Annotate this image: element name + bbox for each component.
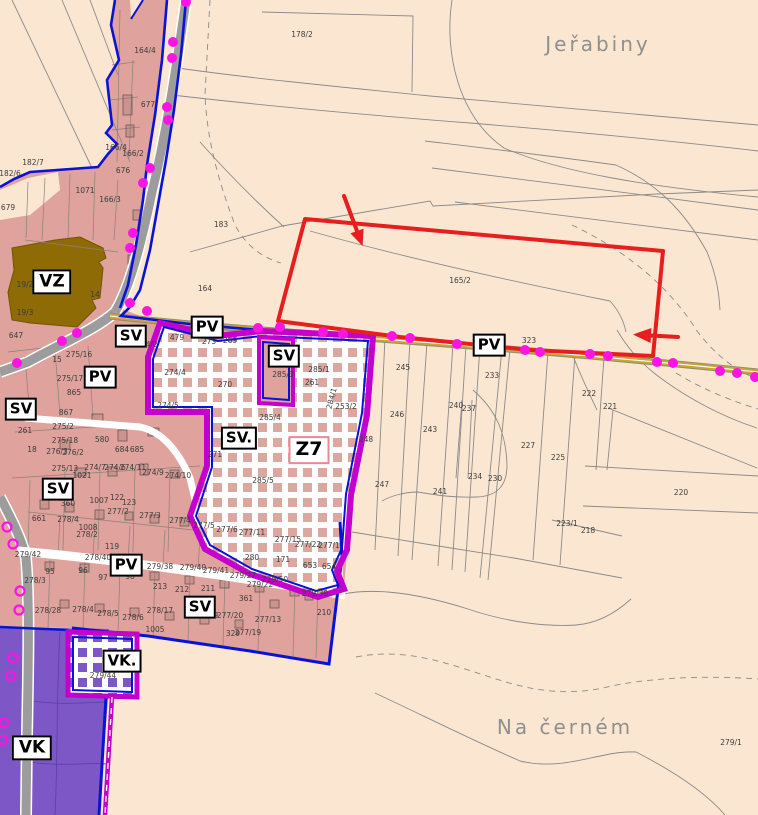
- parcel-number: 243: [423, 425, 438, 434]
- magenta-dot: [128, 228, 138, 238]
- parcel-number: 271: [208, 450, 223, 459]
- magenta-dot: [163, 115, 173, 125]
- parcel-number: 361: [239, 594, 254, 603]
- magenta-dot: [167, 53, 177, 63]
- parcel-number: 274/11: [120, 463, 147, 472]
- building-outline: [220, 580, 229, 588]
- parcel-number: 210: [317, 608, 332, 617]
- parcel-number: 323: [522, 336, 537, 345]
- parcel-number: 280: [245, 553, 260, 562]
- parcel-number: 685: [130, 445, 145, 454]
- building-outline: [118, 430, 127, 441]
- parcel-number: 661: [32, 514, 47, 523]
- parcel-number: 279/38: [147, 562, 174, 571]
- building-outline: [95, 510, 104, 519]
- magenta-dot: [585, 349, 595, 359]
- parcel-number: 253/2: [335, 402, 357, 411]
- parcel-number: 19/3: [17, 308, 34, 317]
- magenta-dot: [253, 323, 263, 333]
- parcel-number: 19/2: [17, 280, 34, 289]
- parcel-number: 278/4: [72, 605, 94, 614]
- parcel-number: 277/6: [216, 525, 238, 534]
- zoning-map-canvas: 178/2183164165/2323182/7182/667967610711…: [0, 0, 758, 815]
- parcel-number: 164/4: [134, 46, 156, 55]
- parcel-number: 684: [115, 445, 130, 454]
- parcel-number: 211: [201, 584, 216, 593]
- zone-label-sv: SV: [268, 345, 300, 368]
- building-outline: [270, 600, 279, 608]
- parcel-number: 233: [485, 371, 500, 380]
- red-arrow-shaft-2: [651, 336, 678, 338]
- parcel-number: 277/3: [139, 511, 161, 520]
- zone-label-sv: SV: [42, 478, 74, 501]
- parcel-number: 278/6: [122, 613, 144, 622]
- parcel-number: 1005: [145, 625, 164, 634]
- zone-label-sv: SV: [115, 325, 147, 348]
- parcel-number: 14: [90, 290, 100, 299]
- zone-label-z7: Z7: [289, 436, 330, 464]
- magenta-dot: [72, 328, 82, 338]
- zone-label-pv: PV: [84, 366, 117, 389]
- magenta-dot: [520, 345, 530, 355]
- parcel-number: 279/42: [15, 550, 42, 559]
- building-outline: [150, 572, 159, 580]
- parcel-number: 237: [462, 404, 477, 413]
- parcel-number: 247: [375, 480, 390, 489]
- parcel-number: 278/28: [35, 606, 62, 615]
- parcel-number: 220: [674, 488, 689, 497]
- parcel-number: 248: [359, 435, 374, 444]
- parcel-number: 123: [122, 498, 137, 507]
- zone-label-vk: VK: [12, 735, 52, 760]
- parcel-number: 246: [390, 410, 405, 419]
- parcel-number: 278/40: [85, 553, 112, 562]
- building-outline: [235, 620, 243, 628]
- parcel-number: 218: [581, 526, 596, 535]
- parcel-number: 212: [175, 585, 190, 594]
- magenta-dot: [652, 357, 662, 367]
- magenta-dot: [668, 358, 678, 368]
- parcel-number: 275/17: [57, 374, 84, 383]
- place-name: Na černém: [497, 715, 633, 739]
- parcel-number: 679: [1, 203, 16, 212]
- parcel-number: 279/39: [302, 589, 329, 598]
- parcel-number: 171: [276, 555, 291, 564]
- parcel-number: 274/4: [164, 368, 186, 377]
- parcel-number: 654: [322, 562, 337, 571]
- parcel-number: 182/7: [22, 158, 44, 167]
- magenta-dot: [338, 329, 348, 339]
- parcel-number: 865: [67, 388, 82, 397]
- parcel-number: 278/4: [57, 515, 79, 524]
- parcel-number: 285/3: [272, 370, 294, 379]
- parcel-number: 1021: [72, 471, 91, 480]
- magenta-dot: [732, 368, 742, 378]
- parcel-number: 96: [78, 566, 88, 575]
- parcel-number: 277/11: [239, 528, 266, 537]
- building-outline: [185, 576, 194, 584]
- parcel-number: 279/1: [720, 738, 742, 747]
- zone-label-vz: VZ: [32, 269, 71, 294]
- building-outline: [40, 500, 49, 509]
- parcel-number: 15: [52, 355, 62, 364]
- parcel-number: 166/3: [99, 195, 121, 204]
- parcel-number: 225: [551, 453, 566, 462]
- parcel-number: 95: [45, 567, 55, 576]
- parcel-number: 278/17: [147, 606, 174, 615]
- parcel-number: 677: [141, 100, 156, 109]
- parcel-number: 277/20: [217, 611, 244, 620]
- parcel-number: 234: [468, 472, 483, 481]
- magenta-dot: [405, 333, 415, 343]
- parcel-number: 647: [9, 331, 24, 340]
- magenta-dot: [387, 331, 397, 341]
- parcel-number: 285/5: [252, 476, 274, 485]
- parcel-number: 261: [305, 378, 320, 387]
- parcel-number: 277/19: [235, 628, 262, 637]
- magenta-dot: [125, 298, 135, 308]
- magenta-dot: [275, 322, 285, 332]
- parcel-number: 279/27: [230, 571, 257, 580]
- parcel-number: 275/18: [52, 436, 79, 445]
- parcel-number: 223/1: [556, 519, 578, 528]
- parcel-number: 277/2: [107, 507, 129, 516]
- parcel-number: 285/1: [308, 365, 330, 374]
- parcel-number: 164: [198, 284, 213, 293]
- parcel-number: 279/41: [203, 566, 230, 575]
- parcel-number: 182/6: [0, 169, 21, 178]
- building-outline: [123, 95, 132, 115]
- place-name: Jeřabiny: [545, 32, 650, 56]
- magenta-dot: [138, 178, 148, 188]
- magenta-dot: [318, 327, 328, 337]
- parcel-number: 261: [18, 426, 33, 435]
- parcel-number: 274/5: [157, 401, 179, 410]
- parcel-number: 213: [153, 582, 168, 591]
- parcel-number: 18: [27, 445, 37, 454]
- parcel-number: 277/5: [193, 521, 215, 530]
- parcel-number: 278/5: [97, 609, 119, 618]
- parcel-number: 285/4: [259, 413, 281, 422]
- parcel-number: 277/13: [255, 615, 282, 624]
- zone-label-sv: SV.: [221, 427, 257, 450]
- parcel-number: 178/2: [291, 30, 313, 39]
- parcel-number: 1007: [89, 496, 108, 505]
- zone-label-pv: PV: [473, 334, 506, 357]
- magenta-dot: [535, 347, 545, 357]
- magenta-dot: [145, 163, 155, 173]
- parcel-number: 270: [218, 380, 233, 389]
- parcel-number: 183: [214, 220, 229, 229]
- zone-label-vk: VK.: [103, 650, 142, 673]
- parcel-number: 274/10: [165, 471, 192, 480]
- magenta-dot: [715, 366, 725, 376]
- zone-label-pv: PV: [110, 554, 143, 577]
- parcel-number: 867: [59, 408, 74, 417]
- magenta-dot: [162, 102, 172, 112]
- parcel-number: 1071: [75, 186, 94, 195]
- magenta-dot: [142, 306, 152, 316]
- building-outline: [126, 125, 134, 137]
- map-viewport[interactable]: 178/2183164165/2323182/7182/667967610711…: [0, 0, 758, 815]
- magenta-dot: [168, 37, 178, 47]
- magenta-dot: [452, 339, 462, 349]
- parcel-number: 230: [488, 474, 503, 483]
- parcel-number: 277/4: [169, 516, 191, 525]
- parcel-number: 269: [223, 336, 238, 345]
- parcel-number: 227: [521, 441, 536, 450]
- parcel-number: 479: [170, 333, 185, 342]
- building-outline: [60, 600, 69, 608]
- parcel-number: 166/4: [105, 143, 127, 152]
- parcel-number: 221: [603, 402, 618, 411]
- magenta-dot: [125, 243, 135, 253]
- parcel-number: 222: [582, 389, 597, 398]
- parcel-number: 275/16: [66, 350, 93, 359]
- parcel-number: 97: [98, 573, 108, 582]
- magenta-dot: [57, 336, 67, 346]
- magenta-dot: [12, 358, 22, 368]
- parcel-number: 275/2: [52, 422, 74, 431]
- parcel-number: 276/2: [62, 448, 84, 457]
- zone-label-sv: SV: [184, 596, 216, 619]
- parcel-number: 278/3: [24, 576, 46, 585]
- parcel-number: 277/1: [318, 541, 340, 550]
- parcel-number: 278/2: [76, 530, 98, 539]
- parcel-number: 279/22: [247, 580, 274, 589]
- parcel-number: 165/2: [449, 276, 471, 285]
- parcel-number: 241: [433, 487, 448, 496]
- magenta-dot: [603, 351, 613, 361]
- parcel-number: 119: [105, 542, 120, 551]
- parcel-number: 676: [116, 166, 131, 175]
- parcel-number: 580: [95, 435, 110, 444]
- parcel-number: 653: [303, 561, 318, 570]
- zone-label-pv: PV: [191, 316, 224, 339]
- parcel-number: 245: [396, 363, 411, 372]
- zone-label-sv: SV: [5, 398, 37, 421]
